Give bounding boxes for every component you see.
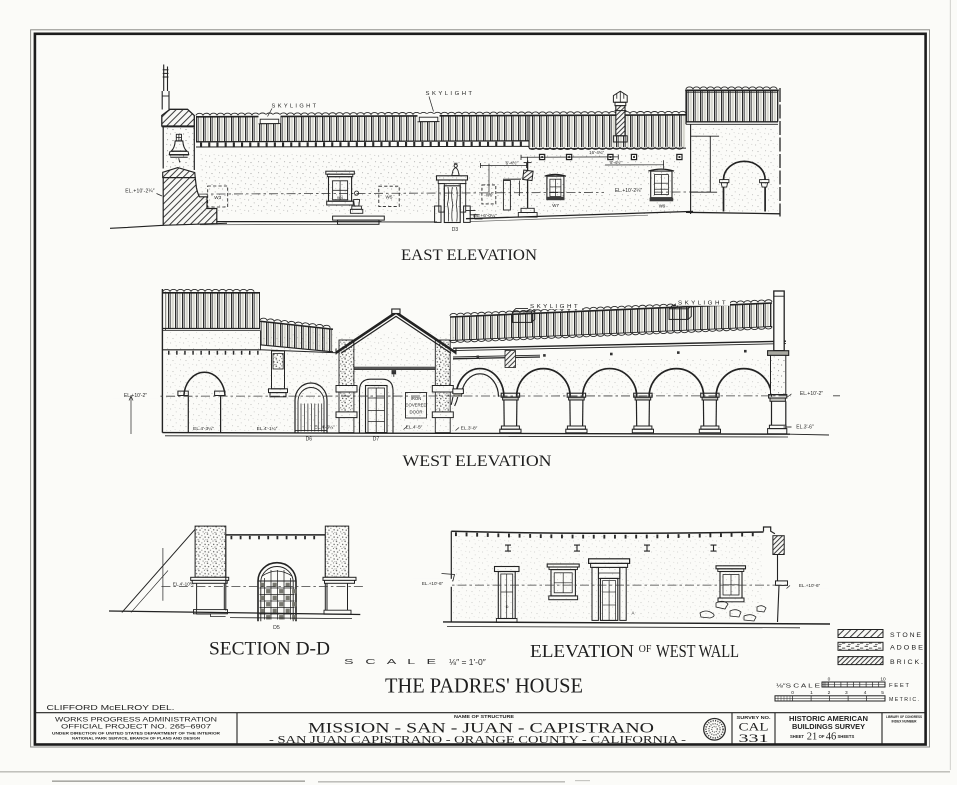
svg-text:S K Y L I G H T: S K Y L I G H T bbox=[272, 104, 317, 110]
svg-text:EL.+10'-2″: EL.+10'-2″ bbox=[800, 391, 823, 397]
svg-text:W5: W5 bbox=[386, 195, 393, 200]
svg-text:W7: W7 bbox=[552, 203, 559, 208]
svg-text:10: 10 bbox=[880, 676, 886, 682]
svg-text:ELEVATION: ELEVATION bbox=[530, 641, 634, 661]
svg-text:WEST ELEVATION: WEST ELEVATION bbox=[403, 453, 552, 470]
svg-text:S K Y L I G H T: S K Y L I G H T bbox=[426, 91, 473, 97]
svg-text:D6: D6 bbox=[306, 437, 313, 443]
svg-text:0: 0 bbox=[828, 676, 831, 682]
svg-text:⅛″ = 1'-0″: ⅛″ = 1'-0″ bbox=[449, 657, 486, 667]
svg-text:D3: D3 bbox=[452, 227, 459, 233]
svg-text:16'-4¾″: 16'-4¾″ bbox=[589, 150, 604, 155]
svg-text:EL.3'-6″: EL.3'-6″ bbox=[796, 425, 814, 431]
svg-text:3: 3 bbox=[845, 690, 848, 696]
svg-text:S K Y L I G H T: S K Y L I G H T bbox=[678, 301, 726, 307]
svg-text:EAST ELEVATION: EAST ELEVATION bbox=[401, 247, 537, 264]
svg-text:M E T R I C .: M E T R I C . bbox=[889, 697, 919, 703]
svg-text:THE PADRES' HOUSE: THE PADRES' HOUSE bbox=[385, 674, 583, 698]
svg-text:EL.+6'-0¼″: EL.+6'-0¼″ bbox=[473, 213, 497, 219]
svg-text:4: 4 bbox=[864, 690, 867, 696]
svg-text:A D O B E: A D O B E bbox=[890, 645, 923, 652]
svg-text:⅛″S C A L E: ⅛″S C A L E bbox=[776, 684, 820, 690]
svg-text:SHEETS: SHEETS bbox=[838, 734, 855, 739]
svg-text:SECTION D-D: SECTION D-D bbox=[209, 639, 330, 660]
svg-text:INDEX NUMBER: INDEX NUMBER bbox=[892, 720, 918, 724]
svg-text:46: 46 bbox=[826, 732, 837, 743]
svg-text:21: 21 bbox=[807, 732, 818, 743]
svg-text:D7: D7 bbox=[373, 437, 380, 443]
svg-text:331: 331 bbox=[739, 731, 769, 745]
svg-text:W9: W9 bbox=[659, 203, 666, 208]
svg-text:W4: W4 bbox=[337, 195, 344, 200]
svg-text:LIBRARY OF CONGRESS: LIBRARY OF CONGRESS bbox=[886, 715, 923, 719]
svg-text:0: 0 bbox=[791, 690, 794, 696]
svg-text:W3: W3 bbox=[214, 195, 221, 200]
svg-text:HISTORIC AMERICAN: HISTORIC AMERICAN bbox=[789, 716, 868, 723]
svg-text:2: 2 bbox=[828, 690, 831, 696]
svg-text:CLIFFORD McELROY DEL.: CLIFFORD McELROY DEL. bbox=[47, 703, 175, 712]
svg-text:WORKS PROGRESS ADMINISTRATIO: WORKS PROGRESS ADMINISTRATION bbox=[55, 716, 217, 723]
svg-text:S C A L E: S C A L E bbox=[344, 657, 440, 666]
svg-text:EL.+10'-2¼″: EL.+10'-2¼″ bbox=[615, 188, 643, 194]
svg-text:6'-4½″: 6'-4½″ bbox=[506, 161, 519, 166]
svg-text:F E E T: F E E T bbox=[889, 683, 910, 689]
svg-text:8'-4½″: 8'-4½″ bbox=[610, 160, 622, 165]
svg-text:B R I C K .: B R I C K . bbox=[890, 659, 923, 666]
svg-text:NATIONAL PARK SERVICE, BRANCH: NATIONAL PARK SERVICE, BRANCH OF PLANS A… bbox=[72, 736, 200, 741]
svg-text:EL.+10'-2¼″: EL.+10'-2¼″ bbox=[125, 188, 155, 194]
svg-text:D5: D5 bbox=[273, 625, 280, 631]
svg-text:- SAN JUAN CAPISTRANO - ORAN: - SAN JUAN CAPISTRANO - ORANGE COUNTY - … bbox=[269, 734, 686, 746]
svg-text:1: 1 bbox=[810, 690, 813, 696]
svg-text:OF: OF bbox=[819, 734, 825, 739]
svg-text:EL.+10'-6″: EL.+10'-6″ bbox=[799, 583, 821, 588]
svg-text:WEST WALL: WEST WALL bbox=[656, 641, 739, 661]
svg-text:S T O N E: S T O N E bbox=[890, 632, 921, 639]
svg-text:EL.3'-8″: EL.3'-8″ bbox=[461, 426, 478, 432]
svg-text:SHEET: SHEET bbox=[790, 734, 804, 739]
svg-text:OF: OF bbox=[639, 644, 652, 655]
svg-text:EL.+10'-6″: EL.+10'-6″ bbox=[422, 581, 444, 586]
svg-text:EL.+10'-2″: EL.+10'-2″ bbox=[124, 393, 147, 399]
svg-text:S K Y L I G H T: S K Y L I G H T bbox=[530, 304, 578, 310]
svg-text:5: 5 bbox=[881, 690, 884, 696]
svg-text:BUILDINGS SURVEY: BUILDINGS SURVEY bbox=[792, 724, 865, 731]
svg-text:NAME OF STRUCTURE: NAME OF STRUCTURE bbox=[454, 714, 514, 719]
